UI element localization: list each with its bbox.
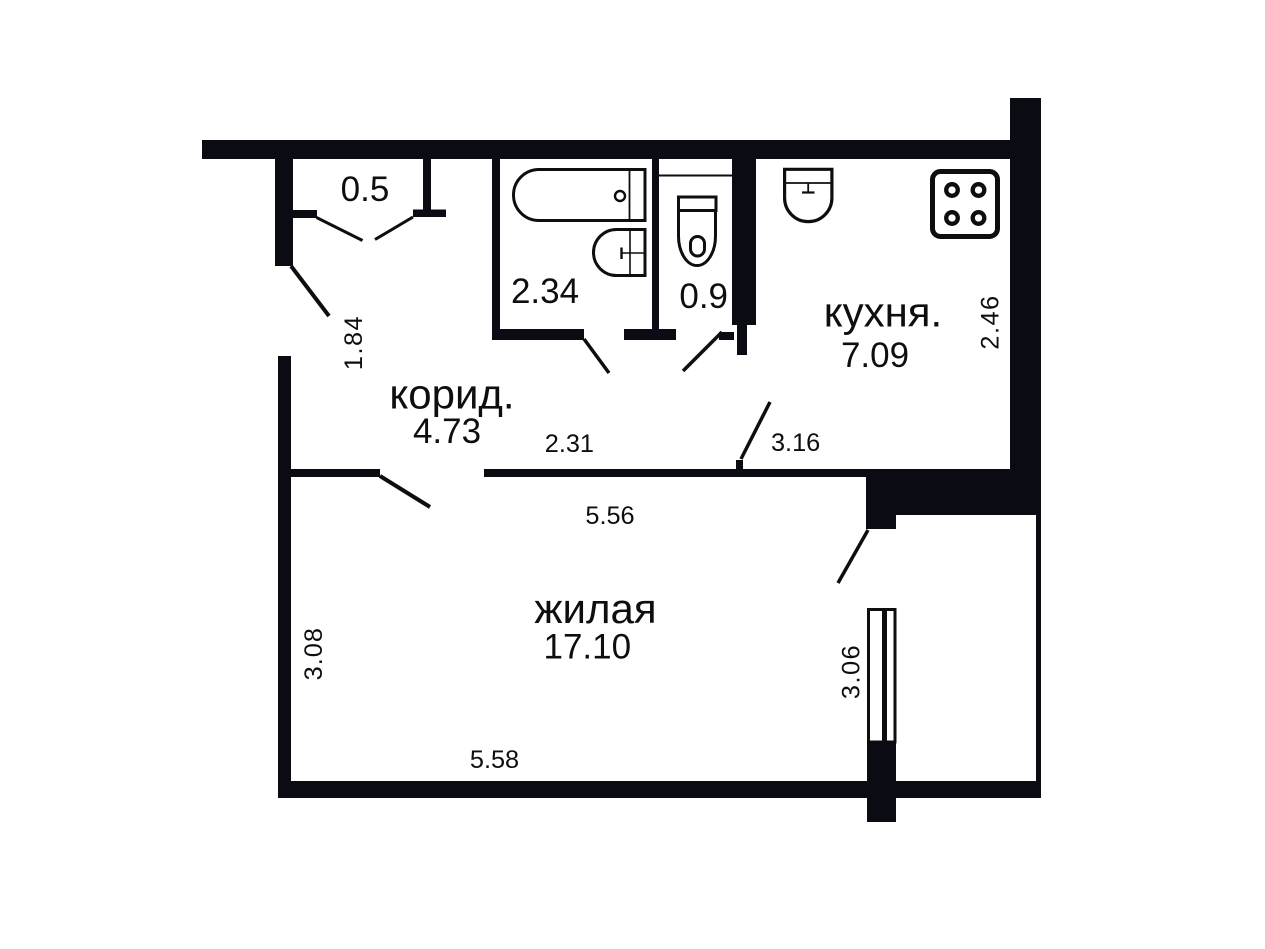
- svg-text:7.09: 7.09: [841, 336, 909, 375]
- svg-text:0.9: 0.9: [679, 277, 728, 316]
- svg-text:корид.: корид.: [389, 371, 514, 418]
- svg-text:4.73: 4.73: [413, 412, 481, 451]
- svg-text:2.31: 2.31: [545, 430, 594, 458]
- svg-text:5.56: 5.56: [585, 502, 634, 530]
- svg-text:3.06: 3.06: [837, 644, 865, 699]
- svg-text:2.34: 2.34: [511, 272, 579, 311]
- svg-text:5.58: 5.58: [470, 746, 519, 774]
- svg-text:0.5: 0.5: [341, 170, 390, 209]
- svg-text:17.10: 17.10: [544, 628, 632, 667]
- svg-text:кухня.: кухня.: [824, 289, 942, 336]
- svg-text:3.16: 3.16: [771, 429, 820, 457]
- svg-text:2.46: 2.46: [977, 294, 1005, 349]
- svg-text:1.84: 1.84: [340, 315, 368, 370]
- svg-text:жилая: жилая: [534, 585, 656, 632]
- svg-text:3.08: 3.08: [300, 627, 328, 680]
